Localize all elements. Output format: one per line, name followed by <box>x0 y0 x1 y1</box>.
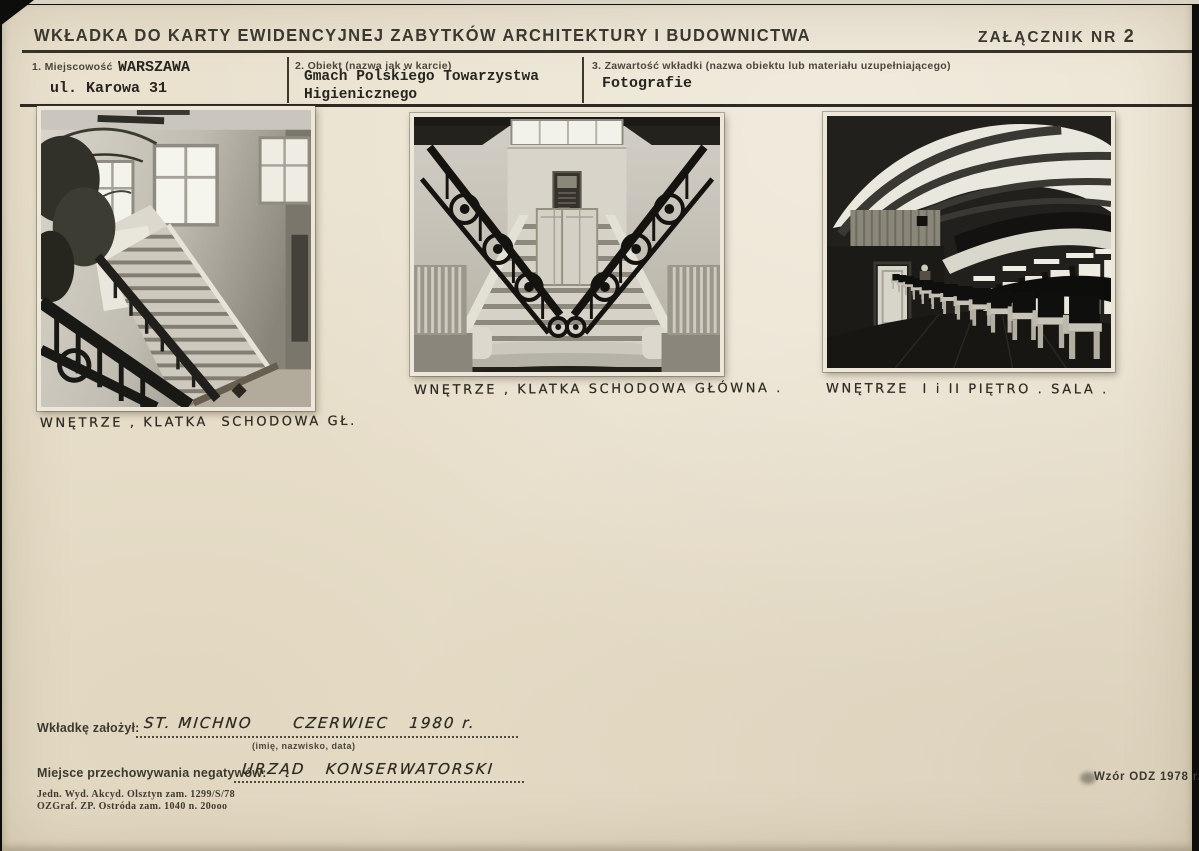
field-divider-2 <box>582 57 584 103</box>
field-3-value-line1: Fotografie <box>602 75 692 92</box>
staircase-front-illustration <box>414 117 720 372</box>
field-1-value-line2: ul. Karowa 31 <box>50 80 167 97</box>
hall-illustration <box>827 116 1111 368</box>
photo-2-caption: WNĘTRZE , KLATKA SCHODOWA GŁÓWNA . <box>414 381 783 398</box>
attachment-number: 2 <box>1124 26 1134 46</box>
photo-1-caption: WNĘTRZE , KLATKA SCHODOWA GŁ. <box>40 414 357 431</box>
imprint-line-1: Jedn. Wyd. Akcyd. Olsztyn zam. 1299/S/78 <box>37 789 235 800</box>
founder-label: Wkładkę założył: <box>37 721 140 735</box>
photo-3-caption: WNĘTRZE I i II PIĘTRO . SALA . <box>826 382 1109 398</box>
attachment-label: ZAŁĄCZNIK NR 2 <box>978 26 1134 47</box>
founder-hint: (imię, nazwisko, data) <box>252 741 356 751</box>
field-1-label: 1. Miejscowość <box>32 61 113 73</box>
archival-card-scan: WKŁADKA DO KARTY EWIDENCYJNEJ ZABYTKÓW A… <box>0 0 1199 851</box>
photo-staircase-front <box>410 113 724 376</box>
staircase-side-illustration <box>41 110 311 407</box>
field-2-value-line1: Gmach Polskiego Towarzystwa <box>304 69 539 85</box>
founder-value-handwritten: ST. MICHNO CZERWIEC 1980 r. <box>143 714 476 732</box>
form-note: Wzór ODZ 1978 r. <box>1094 771 1199 783</box>
header-rule <box>22 50 1192 53</box>
field-1-value-line1: WARSZAWA <box>118 59 190 76</box>
photo-staircase-side <box>37 106 315 411</box>
field-2-value-line2: Higienicznego <box>304 87 417 103</box>
card-paper: WKŁADKA DO KARTY EWIDENCYJNEJ ZABYTKÓW A… <box>2 5 1192 851</box>
negatives-value-handwritten: URZĄD KONSERWATORSKI <box>241 760 495 778</box>
scan-top-edge <box>0 0 1199 4</box>
photo-hall <box>823 112 1115 372</box>
imprint-line-2: OZGraf. ZP. Ostróda zam. 1040 n. 20ooo <box>37 801 227 812</box>
negatives-label: Miejsce przechowywania negatywów: <box>37 766 267 780</box>
attachment-text: ZAŁĄCZNIK NR <box>978 29 1124 46</box>
founder-dotted-line <box>136 736 518 738</box>
field-divider-1 <box>287 57 289 103</box>
scan-corner-clip <box>0 0 34 26</box>
card-title: WKŁADKA DO KARTY EWIDENCYJNEJ ZABYTKÓW A… <box>34 27 811 47</box>
negatives-dotted-line <box>234 781 524 783</box>
field-3-label: 3. Zawartość wkładki (nazwa obiektu lub … <box>592 60 951 72</box>
